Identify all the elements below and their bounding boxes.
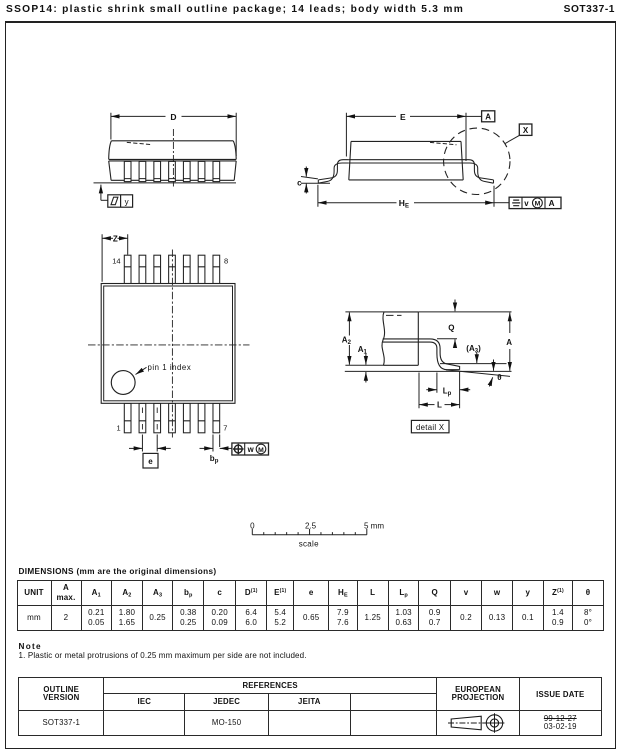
svg-text:A2: A2 <box>342 335 352 346</box>
svg-text:D: D <box>170 112 176 122</box>
svg-text:v: v <box>524 199 529 208</box>
svg-text:y: y <box>125 197 129 206</box>
svg-text:bp: bp <box>210 454 219 465</box>
svg-text:5 mm: 5 mm <box>364 521 384 530</box>
svg-text:A: A <box>549 199 555 208</box>
svg-text:1: 1 <box>117 423 121 432</box>
svg-text:c: c <box>297 178 302 187</box>
svg-text:A: A <box>506 338 512 347</box>
svg-text:w: w <box>247 445 255 454</box>
svg-text:E: E <box>400 112 406 122</box>
svg-text:X: X <box>523 126 529 135</box>
svg-text:8: 8 <box>224 256 228 265</box>
svg-text:θ: θ <box>497 373 501 382</box>
svg-text:HE: HE <box>399 198 409 210</box>
svg-text:A: A <box>485 113 491 122</box>
svg-text:0: 0 <box>250 521 255 530</box>
svg-text:Q: Q <box>448 323 454 332</box>
svg-text:detail X: detail X <box>416 423 445 432</box>
svg-text:e: e <box>148 457 153 466</box>
svg-text:A1: A1 <box>358 345 368 356</box>
svg-text:L: L <box>437 401 442 410</box>
svg-text:scale: scale <box>299 540 319 549</box>
svg-text:M: M <box>258 447 264 454</box>
svg-text:pin 1 index: pin 1 index <box>148 363 192 372</box>
svg-text:2.5: 2.5 <box>305 521 317 530</box>
svg-text:Lp: Lp <box>443 386 452 397</box>
svg-text:(A3): (A3) <box>466 344 481 355</box>
svg-text:14: 14 <box>112 256 120 265</box>
svg-text:7: 7 <box>223 423 227 432</box>
svg-text:M: M <box>535 201 541 208</box>
svg-text:Z: Z <box>113 234 118 243</box>
